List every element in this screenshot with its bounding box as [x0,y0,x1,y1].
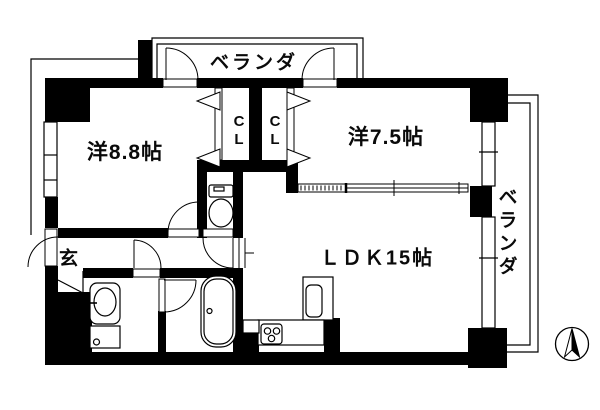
washing-machine-pan-icon [90,326,120,348]
washbasin-icon [88,283,120,324]
room-label-west1: 洋8.8帖 [87,136,163,166]
room-label-west2: 洋7.5帖 [348,121,424,151]
room-label-ldk: ＬＤＫ15帖 [320,242,434,271]
compass-icon [556,328,589,361]
closet-label-right: CL [268,113,282,149]
kitchen-sink-icon [306,285,322,317]
stove-icon [261,324,282,344]
balcony-label-top: ベランダ [210,48,298,75]
entrance-step [58,271,83,293]
toilet-icon [209,185,233,227]
balcony-label-right: ベランダ [493,187,520,279]
hall-ldk-sliding-door [239,238,254,268]
sliding-partition [298,180,468,196]
bathtub-icon [201,276,236,347]
closet-label-left: CL [232,113,246,149]
room-label-entrance: 玄 [59,244,79,271]
floorplan: 洋8.8帖 洋7.5帖 ＬＤＫ15帖 玄 CL CL ベランダ ベランダ [0,0,600,410]
